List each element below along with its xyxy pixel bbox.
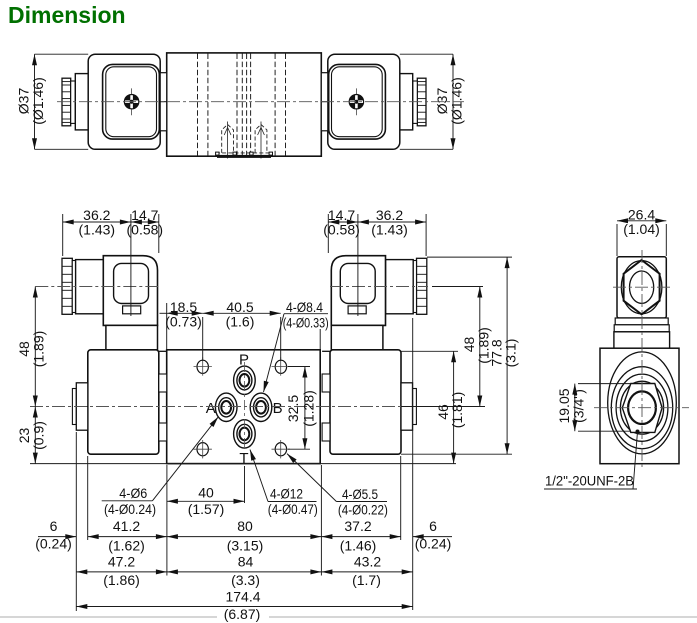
svg-text:(0.24): (0.24): [35, 536, 72, 552]
svg-text:(4-Ø0.24): (4-Ø0.24): [104, 501, 156, 517]
svg-text:(3/4"): (3/4"): [571, 389, 587, 423]
svg-text:174.4: 174.4: [225, 589, 260, 605]
svg-text:47.2: 47.2: [108, 554, 135, 570]
svg-text:(1.62): (1.62): [108, 538, 145, 554]
svg-text:6: 6: [429, 518, 437, 534]
svg-text:(Ø1.46): (Ø1.46): [449, 77, 465, 124]
svg-text:43.2: 43.2: [354, 554, 381, 570]
svg-text:(Ø1.46): (Ø1.46): [30, 77, 46, 124]
svg-text:4-Ø6: 4-Ø6: [119, 485, 147, 501]
svg-text:(3.15): (3.15): [227, 538, 264, 554]
svg-text:37.2: 37.2: [344, 518, 371, 534]
svg-text:T: T: [239, 450, 248, 467]
svg-text:(4-Ø0.33): (4-Ø0.33): [283, 314, 329, 330]
svg-text:(4-Ø0.22): (4-Ø0.22): [338, 501, 388, 517]
svg-text:(1.6): (1.6): [226, 313, 255, 329]
svg-text:(3.1): (3.1): [503, 339, 519, 368]
svg-text:(0.9): (0.9): [31, 421, 47, 450]
svg-text:41.2: 41.2: [113, 518, 140, 534]
svg-text:(1.57): (1.57): [188, 501, 225, 517]
svg-text:80: 80: [237, 518, 253, 534]
svg-text:(1.43): (1.43): [371, 221, 408, 237]
svg-text:(0.24): (0.24): [415, 536, 452, 552]
svg-text:(1.43): (1.43): [79, 221, 116, 237]
svg-text:40: 40: [198, 485, 214, 501]
svg-text:1/2"-20UNF-2B: 1/2"-20UNF-2B: [545, 473, 634, 489]
svg-text:4-Ø8.4: 4-Ø8.4: [286, 299, 323, 315]
svg-text:84: 84: [238, 554, 254, 570]
svg-text:(1.7): (1.7): [352, 572, 381, 588]
svg-text:(4-Ø0.47): (4-Ø0.47): [268, 501, 318, 517]
svg-text:(0.58): (0.58): [323, 221, 360, 237]
svg-text:(3.3): (3.3): [231, 572, 260, 588]
svg-text:32.5: 32.5: [285, 395, 301, 422]
svg-text:Dimension: Dimension: [8, 2, 126, 28]
svg-text:(0.58): (0.58): [127, 221, 164, 237]
svg-text:B: B: [273, 400, 283, 417]
svg-text:(1.89): (1.89): [31, 331, 47, 368]
svg-text:4-Ø12: 4-Ø12: [270, 485, 303, 501]
svg-text:(6.87): (6.87): [224, 606, 261, 622]
svg-text:A: A: [206, 400, 216, 417]
svg-text:6: 6: [50, 518, 58, 534]
svg-text:(1.04): (1.04): [623, 221, 660, 237]
svg-text:(1.46): (1.46): [340, 538, 377, 554]
svg-text:(1.28): (1.28): [301, 390, 317, 427]
svg-text:(1.86): (1.86): [103, 572, 140, 588]
svg-text:(1.81): (1.81): [449, 392, 465, 429]
svg-text:4-Ø5.5: 4-Ø5.5: [342, 486, 378, 502]
svg-text:P: P: [239, 352, 249, 369]
svg-text:(0.73): (0.73): [165, 313, 202, 329]
